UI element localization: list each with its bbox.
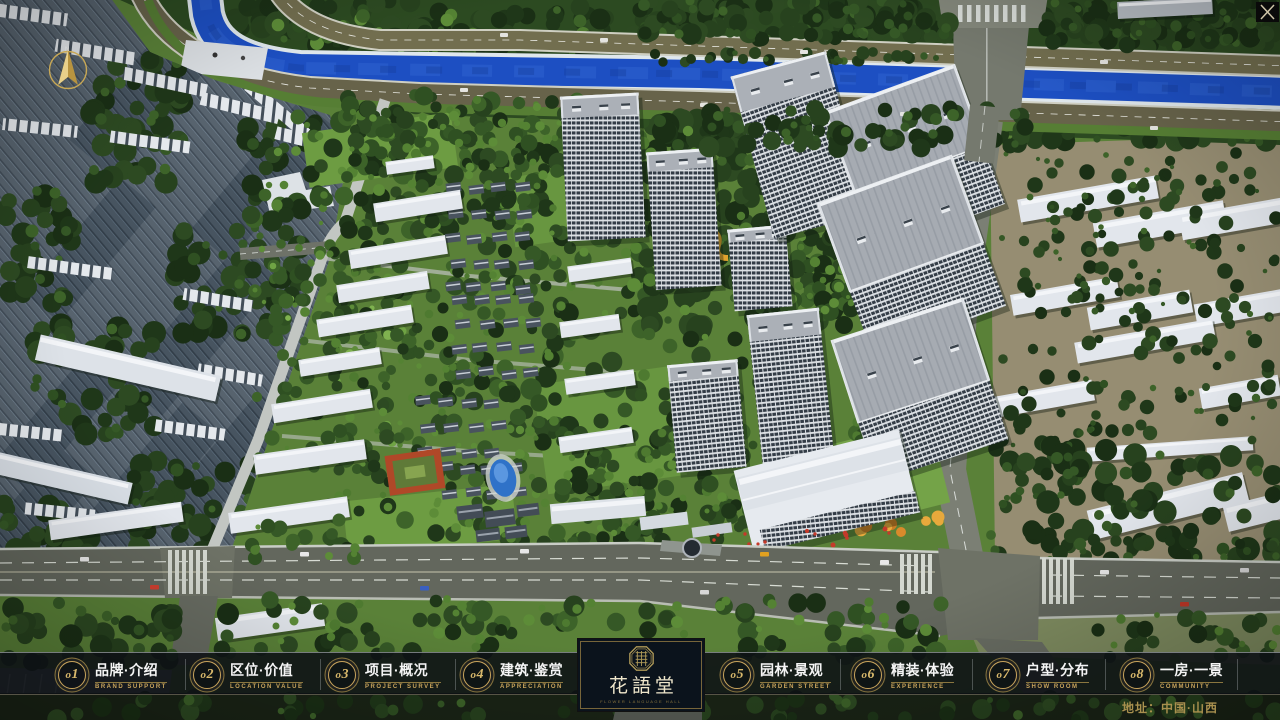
svg-text:N: N <box>65 47 69 53</box>
